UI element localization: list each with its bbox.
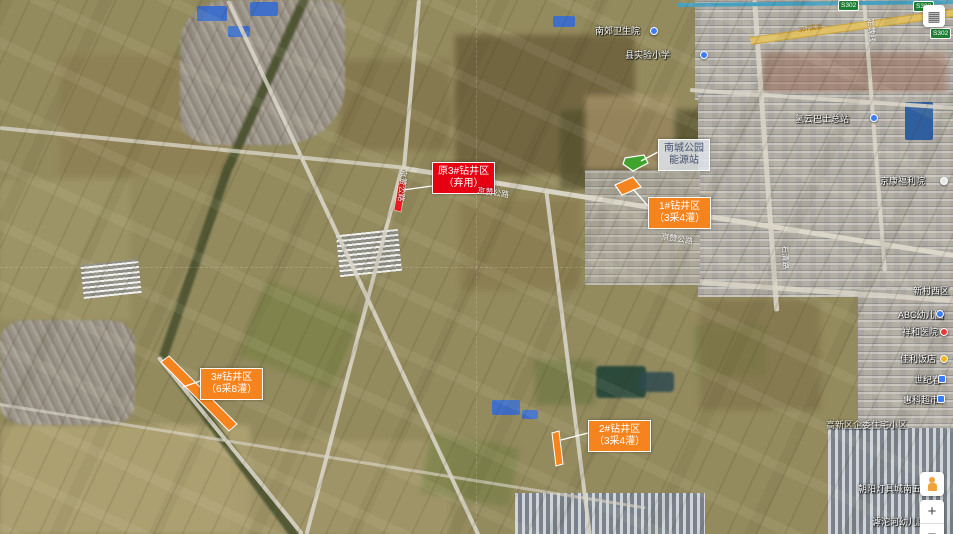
poi-label: 县实验小学 [625,50,670,60]
poi-label: 新村西区 [913,286,949,296]
urban-tint [762,52,947,94]
poi-pin [700,51,708,59]
zoom-control: + − [920,500,944,534]
poi-label: 世纪春 [914,375,941,385]
poi-label: 祥和医院 [902,327,938,337]
zone2-strip-marker [552,431,563,466]
poi-pin [870,114,878,122]
annotation-line: （6采8灌） [206,384,257,396]
terrain-patch [700,300,820,410]
pond [596,366,646,398]
road-label: 定魏线 [866,18,877,43]
poi-pin [650,27,658,35]
terrain-patch [0,180,130,320]
blue-roof-building [522,410,538,419]
blue-roof-building [197,6,227,21]
road-label: 京赞公路 [396,169,408,202]
poi-label: 惠科超市 [903,395,939,405]
annotation-line: （3采4灌） [654,213,705,225]
poi-pin [937,395,945,403]
road-label: 京赞公路 [477,186,510,199]
annotation-line: 南城公园 [664,143,704,155]
annotation-energy-station: 南城公园 能源站 [658,139,710,171]
terrain-patch [460,200,580,290]
layers-grid-icon: ▦ [927,8,940,25]
leader-line-abandoned [403,186,432,190]
leader-line-zone2 [561,433,588,440]
poi-label: 京康福利院 [880,176,925,186]
annotation-line: 能源站 [664,155,704,167]
zoom-out-button[interactable]: − [920,524,944,534]
annotation-line: 原3#钻井区 [438,166,489,178]
warehouse-rows [515,493,705,534]
road-label: 石清路 [780,245,790,269]
highway-shield: S302 [930,28,951,39]
annotation-line: 1#钻井区 [654,201,705,213]
satellite-map[interactable]: 原3#钻井区 （弃用） 南城公园 能源站 1#钻井区 （3采4灌） 3#钻井区 … [0,0,953,534]
poi-label: 滹沱河幼儿园 [872,517,926,527]
poi-label: 氢云巴士总站 [795,114,849,124]
annotation-line: 2#钻井区 [594,424,645,436]
annotation-zone1: 1#钻井区 （3采4灌） [648,197,711,229]
terrain-patch [535,360,595,405]
greenhouse-rows [80,259,141,299]
blue-roof-building [250,2,278,16]
blue-roof-building [553,16,575,27]
terrain-patch [0,425,250,534]
poi-pin [936,310,944,318]
terrain-patch [340,60,450,150]
annotation-zone3: 3#钻井区 （6采8灌） [200,368,263,400]
poi-label: 高新区企委住宅小区 [826,420,907,430]
zoom-in-button[interactable]: + [920,500,944,524]
canal-segment [159,164,233,359]
poi-label: 南郊卫生院 [595,26,640,36]
streetview-button[interactable] [920,472,944,496]
pond [640,372,674,392]
annotation-zone2: 2#钻井区 （3采4灌） [588,420,651,452]
poi-pin [940,355,948,363]
blue-roof-building [492,400,520,415]
poi-pin [938,375,946,383]
layers-button[interactable]: ▦ [923,5,945,27]
poi-label: 佳利饭店 [900,354,936,364]
poi-pin [940,177,948,185]
highway-shield: S302 [838,0,859,11]
poi-pin [940,328,948,336]
annotation-line: （3采4灌） [594,436,645,448]
pegman-icon [927,477,938,492]
annotation-line: 3#钻井区 [206,372,257,384]
